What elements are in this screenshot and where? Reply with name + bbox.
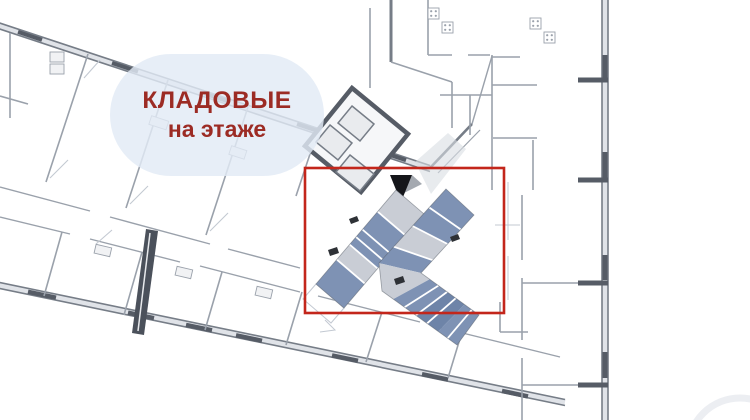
corridor-walls	[0, 187, 560, 357]
exterior-wall-bottom	[0, 282, 565, 406]
title-badge	[110, 54, 324, 176]
center-block	[305, 0, 490, 202]
exterior-wall-right	[578, 0, 608, 420]
floor-plan	[0, 0, 750, 420]
right-wing-partitions	[440, 55, 578, 420]
floorplan-screenshot: КЛАДОВЫЕ на этаже	[0, 0, 750, 420]
stove-icons	[428, 8, 555, 43]
lobby-area	[415, 133, 466, 194]
watermark-circle	[688, 398, 750, 420]
